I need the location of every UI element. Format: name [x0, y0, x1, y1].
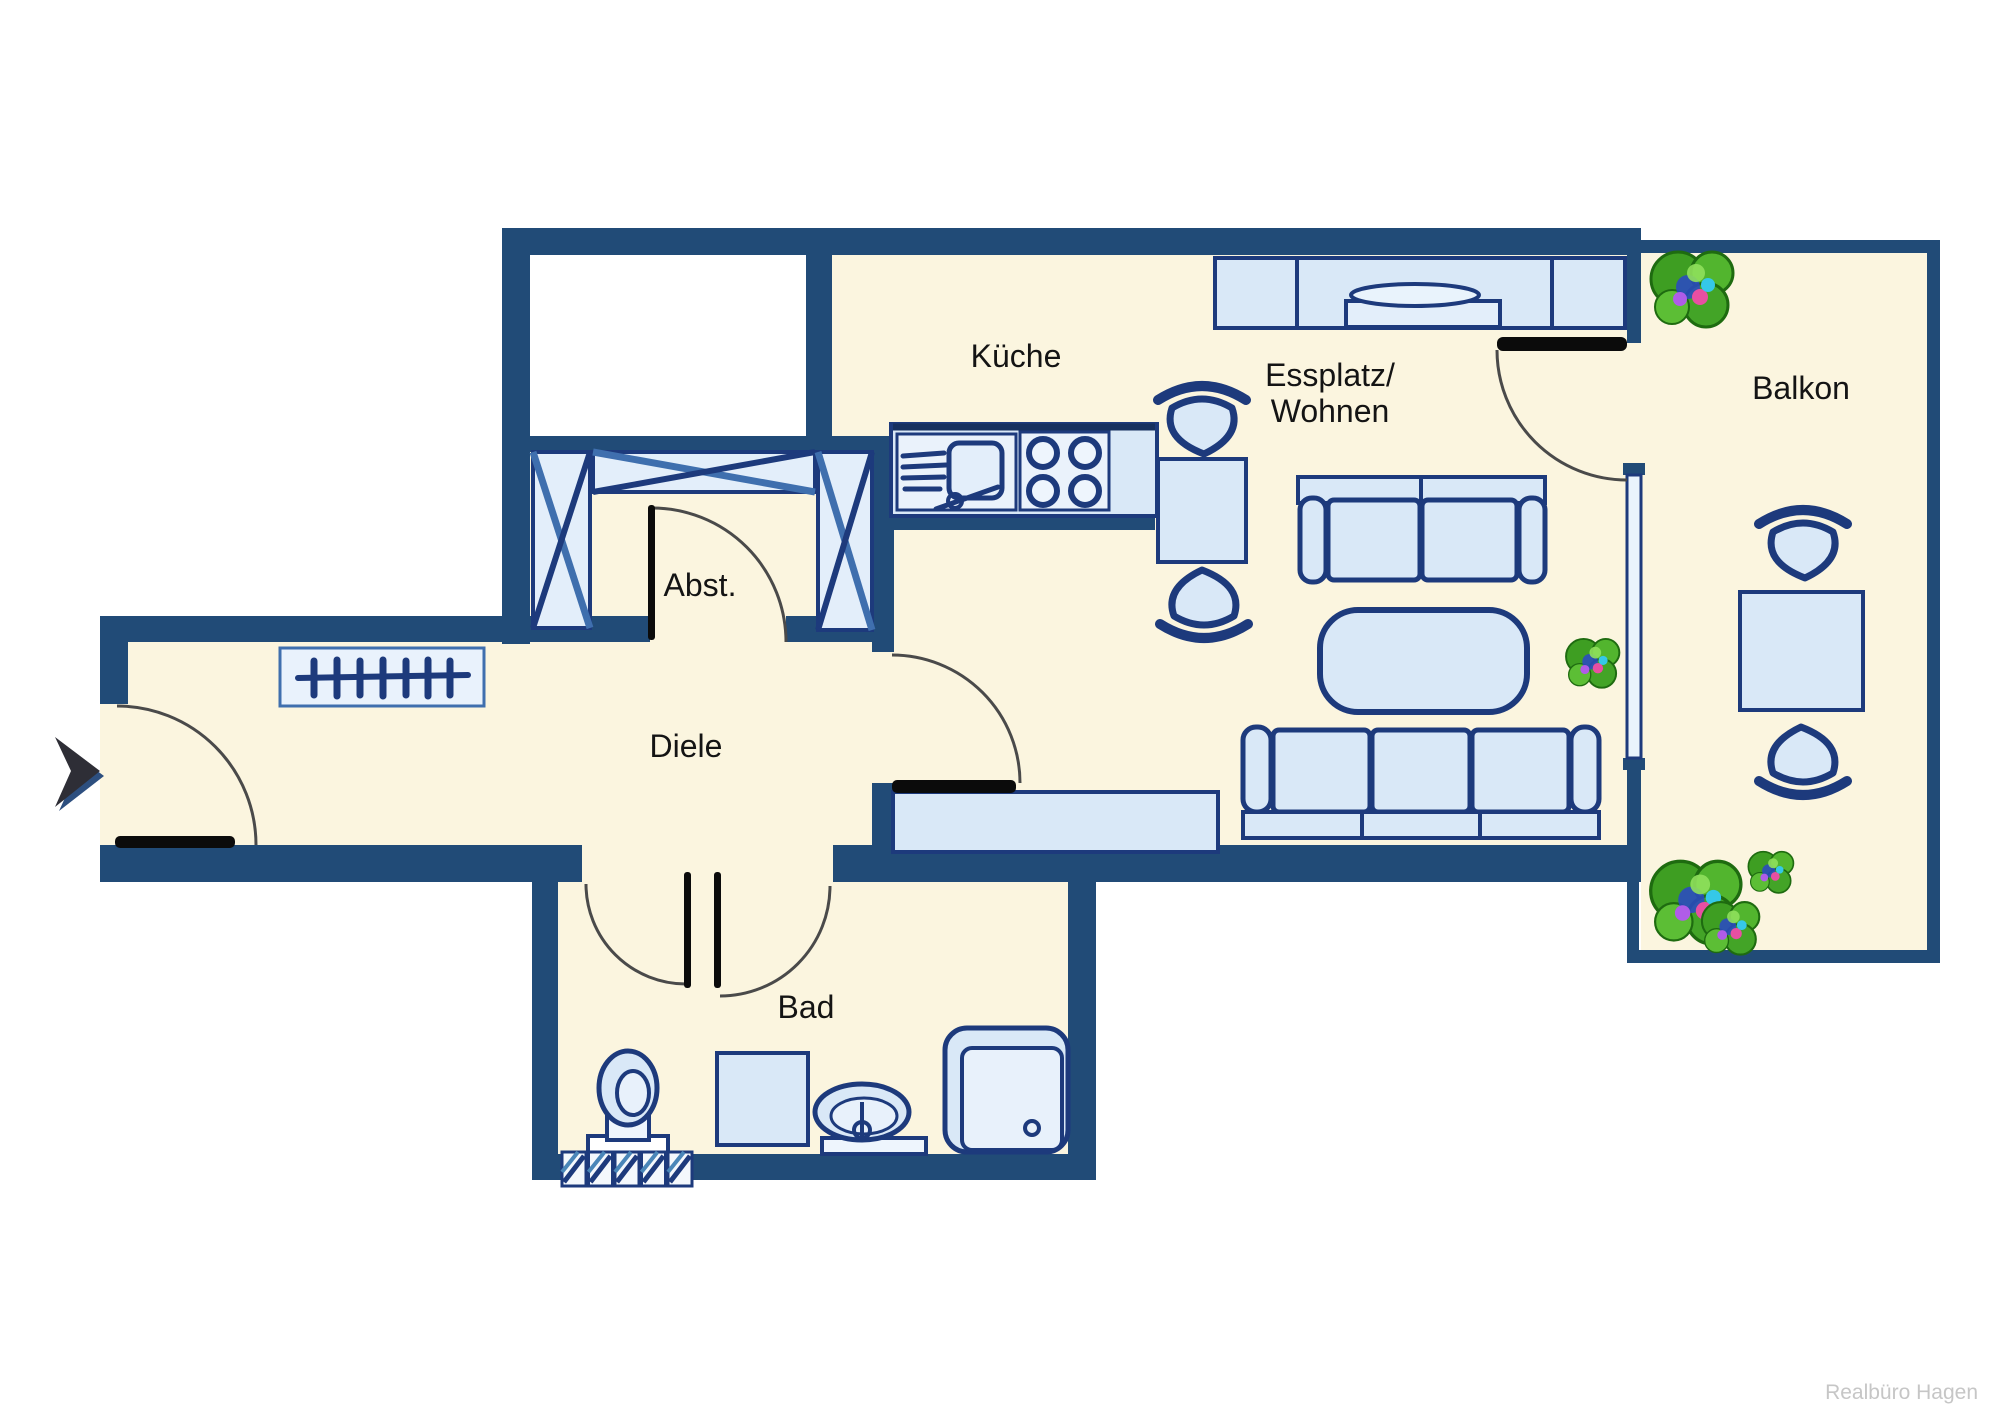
floor-hall-door-gap — [874, 650, 894, 783]
wall-bath-right — [1068, 845, 1096, 1180]
sofa-cushion — [1472, 730, 1569, 812]
wall-right-above-door — [1627, 255, 1641, 343]
wall-left-entrance — [100, 616, 128, 704]
sofa-cushion — [1328, 500, 1420, 580]
wall-bottom-left — [100, 845, 582, 882]
sofa-arm-left — [1243, 727, 1271, 812]
wall-right-below-window — [1627, 770, 1641, 882]
adjacent-room — [530, 255, 806, 436]
bath-square-fixture — [717, 1053, 808, 1145]
sideboard — [1215, 258, 1625, 328]
label-balcony: Balkon — [1752, 370, 1850, 406]
sofa-two-seat — [1298, 477, 1545, 582]
label-living-line1: Essplatz/ — [1265, 357, 1395, 393]
wall-bath-left — [532, 845, 558, 1180]
sofa-arm-left — [1300, 498, 1326, 582]
coffee-table — [1320, 610, 1527, 712]
floor-balcony-door-gap — [1627, 343, 1641, 477]
label-living-line2: Wohnen — [1271, 393, 1390, 429]
arrow-right-icon — [55, 737, 104, 811]
sideboard-dish — [1351, 284, 1479, 306]
sofa-three-seat — [1243, 727, 1599, 838]
wall-balcony-bottom — [1627, 950, 1940, 963]
label-kitchen: Küche — [971, 338, 1062, 374]
lowboard — [893, 792, 1218, 852]
wall-storage-top — [530, 436, 874, 452]
label-storage: Abst. — [664, 567, 737, 603]
sink-icon — [897, 434, 1016, 510]
wardrobe-x-icon — [818, 452, 872, 630]
sofa-cushion — [1422, 500, 1517, 580]
sofa-arm-right — [1571, 727, 1599, 812]
wall-step-kitchen — [806, 255, 832, 450]
floor-hallway — [128, 640, 874, 845]
plant-icon — [1566, 639, 1619, 688]
plant-icon — [1651, 252, 1733, 327]
floor-plan-page: Küche Essplatz/ Wohnen Balkon Abst. Diel… — [0, 0, 2000, 1413]
shower-icon — [945, 1028, 1068, 1152]
wardrobe-x-icon — [533, 452, 590, 628]
label-bath: Bad — [778, 989, 835, 1025]
wall-hall-stub — [872, 783, 894, 853]
window-living-balcony — [1623, 463, 1645, 770]
sofa-cushion — [1273, 730, 1370, 812]
window-glass — [1627, 475, 1641, 758]
floor-plan-drawing: Küche Essplatz/ Wohnen Balkon Abst. Diel… — [0, 0, 2000, 1413]
plant-icon — [1748, 852, 1793, 893]
stove-icon — [1020, 432, 1109, 510]
wall-hall-top — [100, 616, 530, 642]
window-cap-bottom — [1623, 758, 1645, 770]
floor-entrance-gap — [100, 702, 128, 845]
sofa-cushion — [1372, 730, 1470, 812]
wall-left-section — [502, 228, 530, 644]
wall-top — [502, 228, 1641, 255]
sofa-arm-right — [1519, 498, 1545, 582]
wall-balcony-top — [1641, 240, 1940, 253]
radiator-icon — [562, 1152, 692, 1186]
wall-balcony-right — [1927, 240, 1940, 963]
dining-table — [1158, 459, 1246, 562]
dining-set — [1158, 386, 1248, 638]
balcony-table — [1740, 592, 1863, 710]
coat-rack-icon — [280, 648, 484, 706]
floor-bath-door-gap — [582, 845, 833, 882]
sofa-base — [1243, 812, 1599, 838]
watermark-text: Realbüro Hagen — [1825, 1381, 1978, 1404]
label-hallway: Diele — [650, 728, 723, 764]
kitchen-counter — [891, 424, 1157, 516]
wardrobe-x-icon — [593, 452, 815, 492]
window-cap-top — [1623, 463, 1645, 475]
plant-icon — [1702, 902, 1759, 955]
